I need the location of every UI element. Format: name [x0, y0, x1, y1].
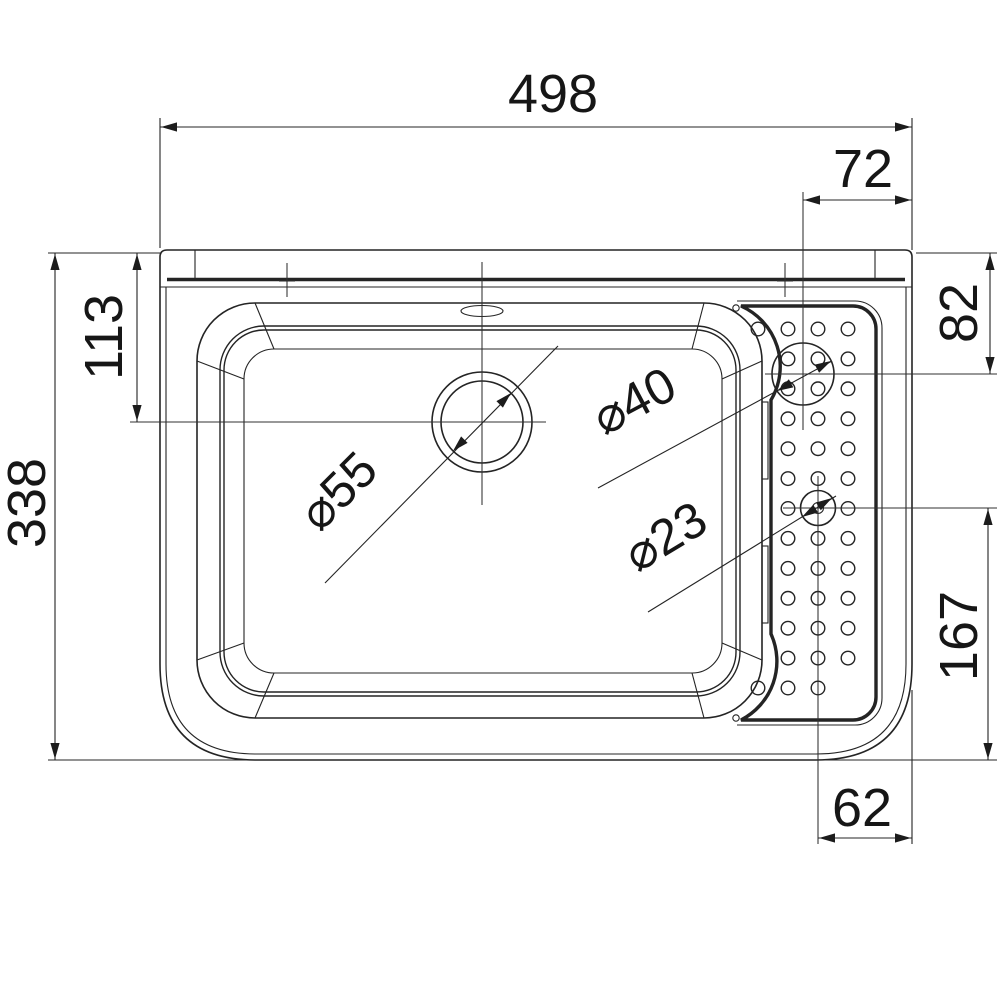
dim-arrow-bottom — [50, 743, 59, 759]
dim-arrow-bottom — [983, 743, 992, 759]
dim-arrow-right — [895, 122, 911, 131]
dim-arrow-top — [985, 254, 994, 270]
drainer-hole — [841, 352, 855, 366]
drainer-hole — [841, 621, 855, 635]
dimension-text-113: 113 — [74, 294, 134, 380]
dimension-text-167: 167 — [929, 591, 989, 681]
centerlines — [130, 192, 997, 844]
drainer-hole — [841, 382, 855, 396]
dim-arrow-left — [804, 195, 820, 204]
dim-arrow-right — [895, 195, 911, 204]
leader-text-23: ⌀23 — [614, 490, 716, 582]
dim-arrow-top — [50, 254, 59, 270]
drainer-hole — [841, 322, 855, 336]
linear-dimensions: 498728211333816762 — [0, 64, 997, 844]
dim-arrow-bottom — [132, 405, 141, 421]
drainer-hole — [781, 592, 795, 606]
drainer-hole — [781, 322, 795, 336]
drainer-hole — [841, 592, 855, 606]
bowl-deck-seam-upper — [762, 402, 768, 479]
drainer-hole — [781, 412, 795, 426]
dimension-text-62: 62 — [832, 778, 892, 838]
dimension-62: 62 — [818, 690, 912, 844]
drainer-hole — [781, 651, 795, 665]
drainer-hole — [841, 532, 855, 546]
drawing-page: 498728211333816762 ⌀55⌀40⌀23 — [0, 0, 1000, 1000]
leader-55: ⌀55 — [288, 346, 558, 583]
drainer-hole — [781, 532, 795, 546]
leader-23: ⌀23 — [614, 490, 836, 612]
drainer-hole — [841, 562, 855, 576]
drainer-hole — [781, 681, 795, 695]
dimension-498: 498 — [160, 64, 912, 250]
drainer-hole — [841, 442, 855, 456]
deck-fillet-dot-top — [733, 305, 739, 311]
dim-arrow-left — [161, 122, 177, 131]
dim-arrow-top — [132, 254, 141, 270]
drainer-hole — [811, 412, 825, 426]
drainer-hole — [841, 472, 855, 486]
dim-arrow-right — [895, 833, 911, 842]
dim-arrow-bottom — [985, 357, 994, 373]
drainer-hole — [781, 621, 795, 635]
leader-text-55: ⌀55 — [288, 441, 388, 541]
drainer-hole — [841, 412, 855, 426]
drainer-hole — [841, 651, 855, 665]
drainer-hole — [811, 382, 825, 396]
dimension-text-338: 338 — [0, 458, 57, 548]
dimension-72: 72 — [803, 139, 912, 205]
technical-drawing: 498728211333816762 ⌀55⌀40⌀23 — [0, 0, 1000, 1000]
drainer-hole — [811, 322, 825, 336]
leader-arrow-1 — [496, 393, 511, 408]
drainer-hole — [781, 472, 795, 486]
dimension-text-82: 82 — [929, 283, 989, 343]
dimension-167: 167 — [820, 508, 997, 760]
leader-text-40: ⌀40 — [583, 356, 685, 446]
dimension-82: 82 — [916, 253, 997, 374]
leader-arrow-0 — [802, 505, 818, 517]
bowl-deck-seam-lower — [762, 546, 768, 623]
drainer-hole — [811, 442, 825, 456]
dimension-113: 113 — [48, 253, 160, 422]
dimension-text-72: 72 — [833, 139, 893, 199]
drainer-hole — [781, 562, 795, 576]
drainer-hole — [781, 352, 795, 366]
leader-arrow-0 — [453, 436, 468, 451]
deck-fillet-dot-bottom — [733, 715, 739, 721]
dimension-text-498: 498 — [508, 64, 598, 124]
drainer-hole — [781, 442, 795, 456]
dim-arrow-top — [983, 509, 992, 525]
diameter-leaders: ⌀55⌀40⌀23 — [288, 346, 836, 612]
